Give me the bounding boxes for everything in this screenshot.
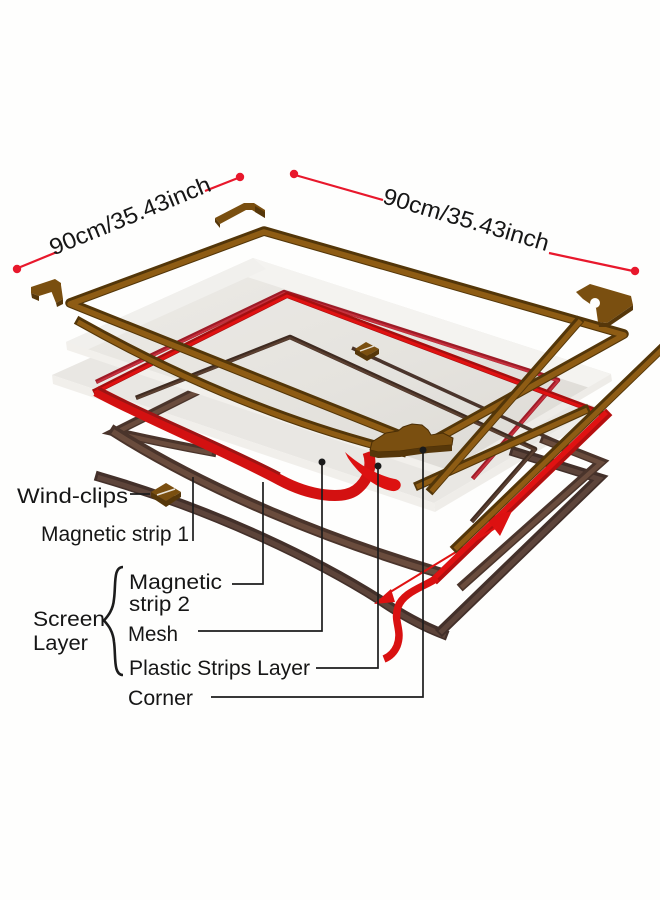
svg-text:Layer: Layer xyxy=(33,632,88,655)
svg-text:Plastic Strips Layer: Plastic Strips Layer xyxy=(129,657,310,680)
svg-text:Magnetic strip 1: Magnetic strip 1 xyxy=(41,523,189,546)
svg-text:Magnetic: Magnetic xyxy=(129,571,222,594)
svg-text:Corner: Corner xyxy=(128,687,193,710)
svg-text:strip 2: strip 2 xyxy=(129,593,190,616)
svg-text:Mesh: Mesh xyxy=(128,623,178,646)
svg-text:Wind-clips: Wind-clips xyxy=(17,485,128,508)
svg-text:Screen: Screen xyxy=(33,608,105,631)
